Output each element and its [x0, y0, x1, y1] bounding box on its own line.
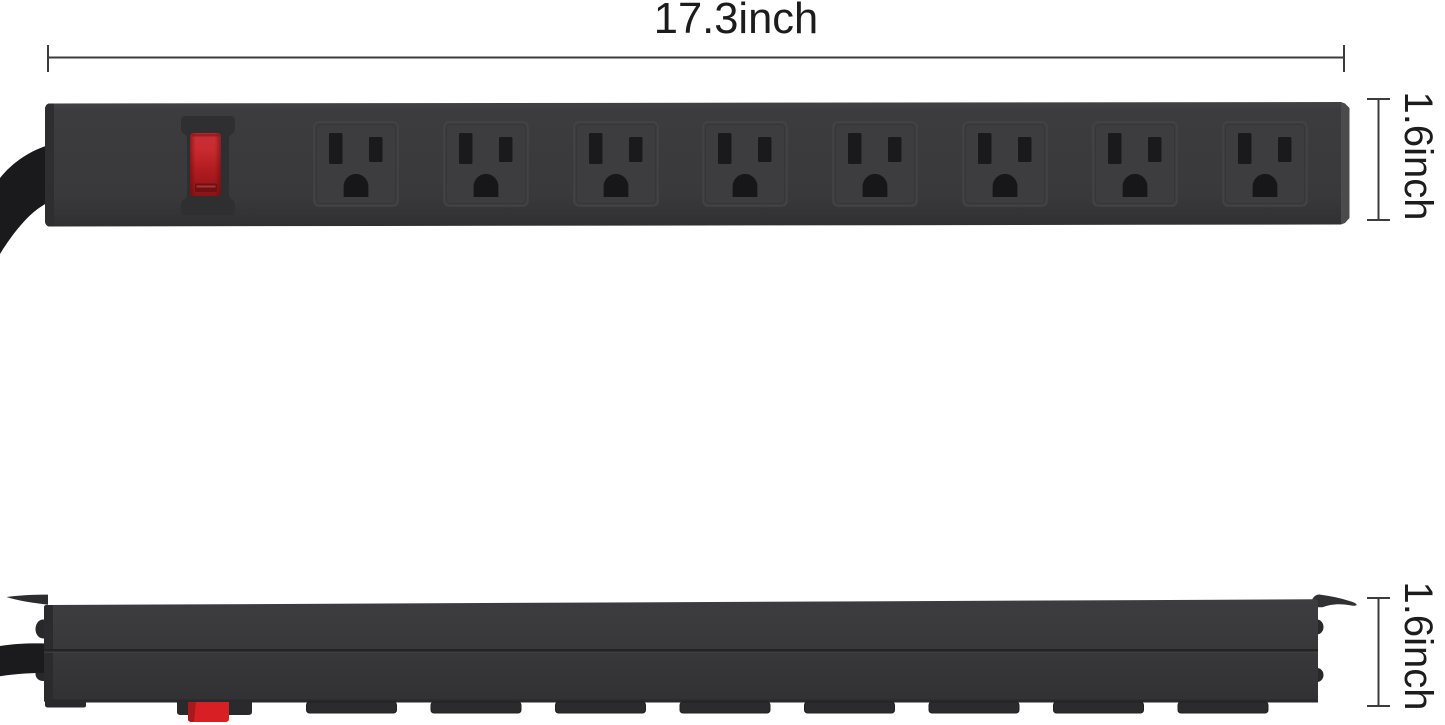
svg-text:1.6inch: 1.6inch — [1396, 92, 1440, 221]
svg-text:17.3inch: 17.3inch — [654, 0, 818, 43]
svg-text:1.6inch: 1.6inch — [1396, 582, 1440, 711]
